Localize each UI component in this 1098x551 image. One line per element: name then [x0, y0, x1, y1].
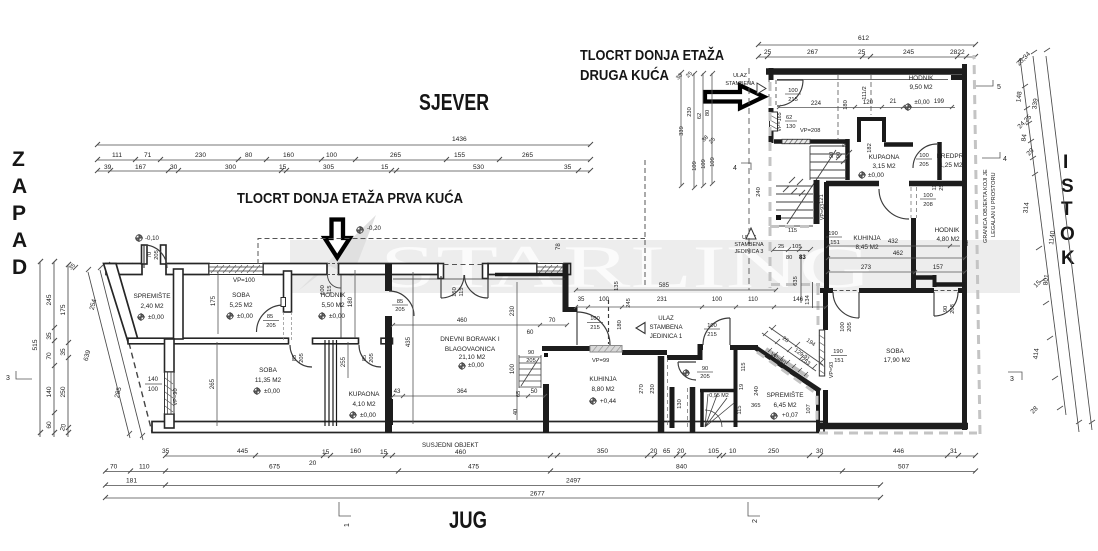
svg-text:100: 100 — [326, 152, 337, 159]
svg-text:-0,20: -0,20 — [367, 225, 382, 232]
svg-text:460: 460 — [457, 317, 468, 324]
svg-text:250: 250 — [939, 181, 945, 191]
svg-text:A: A — [12, 175, 27, 198]
svg-text:675: 675 — [269, 464, 280, 471]
svg-text:60: 60 — [46, 421, 53, 429]
svg-text:2: 2 — [752, 519, 759, 523]
svg-text:265: 265 — [209, 378, 216, 389]
svg-text:5,50 M2: 5,50 M2 — [321, 302, 345, 309]
svg-text:±0,00: ±0,00 — [264, 388, 280, 395]
svg-text:134: 134 — [805, 295, 811, 305]
svg-text:205: 205 — [919, 162, 929, 168]
svg-text:SPREMIŠTE: SPREMIŠTE — [767, 390, 804, 399]
svg-text:116: 116 — [932, 181, 938, 190]
svg-text:20: 20 — [309, 460, 317, 467]
svg-text:30: 30 — [816, 448, 824, 455]
svg-text:460: 460 — [455, 449, 466, 456]
svg-text:205: 205 — [299, 353, 305, 363]
svg-text:VP=208: VP=208 — [800, 128, 820, 134]
svg-text:70: 70 — [549, 317, 556, 324]
svg-text:T: T — [1061, 199, 1073, 220]
svg-text:8,80 M2: 8,80 M2 — [591, 386, 615, 393]
svg-text:180: 180 — [617, 320, 623, 330]
svg-text:635: 635 — [793, 276, 799, 286]
svg-text:175: 175 — [210, 295, 217, 306]
svg-text:SPREMIŠTE: SPREMIŠTE — [134, 291, 171, 300]
svg-text:17,90 M2: 17,90 M2 — [884, 357, 911, 364]
svg-text:35: 35 — [162, 448, 170, 455]
svg-text:155: 155 — [454, 152, 465, 159]
svg-text:100: 100 — [840, 322, 846, 332]
svg-text:182: 182 — [867, 143, 873, 153]
svg-text:TLOCRT DONJA ETAŽA: TLOCRT DONJA ETAŽA — [580, 46, 724, 64]
svg-text:50: 50 — [531, 388, 538, 395]
svg-text:1,25 M2: 1,25 M2 — [939, 162, 963, 169]
svg-text:65: 65 — [663, 448, 671, 455]
svg-text:530: 530 — [473, 164, 484, 171]
svg-text:70: 70 — [147, 252, 153, 258]
svg-text:205: 205 — [395, 307, 405, 313]
svg-text:180: 180 — [843, 100, 849, 110]
svg-text:±0,00: ±0,00 — [914, 99, 930, 106]
svg-text:190: 190 — [828, 231, 838, 237]
svg-text:190: 190 — [833, 349, 843, 355]
svg-text:9,50 M2: 9,50 M2 — [909, 84, 933, 91]
svg-text:100: 100 — [923, 193, 933, 199]
svg-text:65: 65 — [516, 391, 522, 397]
svg-text:507: 507 — [898, 464, 909, 471]
svg-text:K: K — [1061, 248, 1075, 269]
svg-text:181: 181 — [126, 478, 137, 485]
svg-text:462: 462 — [893, 250, 904, 257]
svg-text:130: 130 — [786, 124, 796, 130]
svg-text:100: 100 — [148, 386, 159, 393]
svg-text:305: 305 — [323, 164, 334, 171]
svg-text:21,10 M2: 21,10 M2 — [459, 354, 486, 361]
svg-text:31: 31 — [950, 448, 958, 455]
svg-text:25: 25 — [778, 244, 784, 250]
svg-text:110: 110 — [748, 296, 758, 303]
svg-text:273: 273 — [861, 264, 872, 271]
svg-text:25: 25 — [858, 49, 866, 56]
svg-text:+0,44: +0,44 — [600, 398, 617, 405]
svg-text:130: 130 — [677, 399, 683, 409]
svg-text:105: 105 — [708, 448, 719, 455]
svg-text:365: 365 — [751, 403, 761, 409]
svg-text:SOBA: SOBA — [259, 367, 277, 374]
svg-text:339: 339 — [1031, 98, 1039, 110]
svg-text:JUG: JUG — [449, 507, 487, 534]
svg-text:KUPAONA: KUPAONA — [349, 391, 381, 398]
svg-text:BLAGOVAONICA: BLAGOVAONICA — [445, 346, 496, 353]
svg-text:435: 435 — [405, 336, 412, 347]
svg-text:25: 25 — [764, 49, 772, 56]
svg-text:180: 180 — [347, 296, 354, 307]
svg-text:15: 15 — [381, 164, 389, 171]
svg-text:35: 35 — [564, 164, 572, 171]
svg-text:I: I — [1063, 152, 1068, 173]
svg-text:135: 135 — [614, 281, 620, 291]
svg-text:115: 115 — [737, 405, 743, 414]
svg-text:5: 5 — [997, 84, 1001, 91]
svg-text:SOBA: SOBA — [232, 292, 250, 299]
svg-text:205: 205 — [526, 358, 536, 364]
svg-text:SUSJEDNI OBJEKT: SUSJEDNI OBJEKT — [422, 442, 479, 449]
svg-text:ULAZ: ULAZ — [658, 315, 674, 322]
svg-text:265: 265 — [390, 152, 401, 159]
svg-text:115: 115 — [788, 228, 797, 234]
svg-text:90: 90 — [829, 152, 835, 158]
svg-text:70: 70 — [110, 464, 118, 471]
svg-text:300: 300 — [225, 164, 236, 171]
svg-text:DRUGA KUĆA: DRUGA KUĆA — [580, 66, 669, 84]
svg-text:175: 175 — [60, 304, 67, 315]
svg-text:250: 250 — [60, 386, 67, 397]
svg-text:8,45 M2: 8,45 M2 — [855, 244, 879, 251]
svg-text:432: 432 — [888, 238, 899, 245]
svg-text:100: 100 — [599, 296, 610, 303]
svg-text:111/2: 111/2 — [862, 86, 868, 99]
svg-text:314: 314 — [1022, 202, 1030, 214]
svg-text:208: 208 — [950, 304, 956, 314]
svg-text:21: 21 — [890, 98, 897, 105]
svg-text:85: 85 — [267, 314, 273, 320]
svg-text:±0,00: ±0,00 — [468, 362, 484, 369]
svg-text:160: 160 — [283, 152, 294, 159]
svg-text:250: 250 — [768, 448, 779, 455]
svg-text:80: 80 — [245, 152, 253, 159]
svg-text:157: 157 — [933, 264, 944, 271]
svg-text:KUHINJA: KUHINJA — [589, 376, 617, 383]
svg-text:265: 265 — [522, 152, 533, 159]
svg-text:HODNIK: HODNIK — [909, 75, 935, 82]
svg-text:50: 50 — [842, 141, 848, 147]
svg-text:100: 100 — [590, 316, 600, 322]
svg-text:STAMBENA: STAMBENA — [725, 81, 755, 87]
svg-text:83: 83 — [799, 254, 806, 261]
svg-text:205: 205 — [369, 353, 375, 363]
svg-text:SJEVER: SJEVER — [419, 89, 489, 115]
svg-text:85: 85 — [362, 355, 368, 361]
svg-text:585: 585 — [659, 282, 670, 289]
svg-text:32: 32 — [964, 240, 970, 246]
svg-text:85: 85 — [292, 355, 298, 361]
svg-text:0,95 M2: 0,95 M2 — [709, 393, 728, 399]
svg-text:100: 100 — [712, 296, 723, 303]
svg-text:5,25 M2: 5,25 M2 — [229, 302, 253, 309]
svg-text:35: 35 — [60, 348, 67, 356]
svg-text:SOBA: SOBA — [886, 348, 904, 355]
svg-text:240: 240 — [754, 386, 760, 396]
svg-text:2,40 M2: 2,40 M2 — [140, 303, 164, 310]
svg-text:60: 60 — [527, 329, 534, 336]
svg-text:35: 35 — [46, 332, 53, 340]
svg-text:230: 230 — [650, 384, 656, 394]
svg-text:2497: 2497 — [566, 478, 581, 485]
svg-text:270: 270 — [639, 384, 645, 394]
svg-text:A: A — [12, 229, 27, 252]
svg-text:160: 160 — [350, 448, 361, 455]
svg-text:4,10 M2: 4,10 M2 — [352, 401, 376, 408]
svg-text:KUPAONA: KUPAONA — [869, 154, 901, 161]
svg-text:-0,10: -0,10 — [145, 235, 160, 242]
svg-text:255: 255 — [340, 356, 347, 367]
svg-text:109: 109 — [701, 159, 707, 169]
svg-text:267: 267 — [807, 49, 818, 56]
svg-text:205: 205 — [266, 323, 276, 329]
svg-text:VP=165: VP=165 — [777, 112, 783, 131]
svg-text:100: 100 — [509, 363, 516, 374]
svg-text:339: 339 — [679, 126, 685, 136]
svg-text:111: 111 — [112, 152, 122, 159]
svg-text:4: 4 — [1003, 156, 1007, 163]
svg-text:205: 205 — [847, 322, 853, 332]
svg-text:TLOCRT DONJA ETAŽA PRVA KUĆA: TLOCRT DONJA ETAŽA PRVA KUĆA — [237, 189, 463, 207]
svg-text:40: 40 — [513, 409, 519, 415]
svg-text:146: 146 — [793, 296, 804, 303]
svg-text:VP=90: VP=90 — [173, 388, 179, 405]
svg-text:245: 245 — [903, 49, 914, 56]
svg-text:612: 612 — [858, 35, 869, 42]
svg-text:15: 15 — [322, 449, 330, 456]
svg-text:±0,00: ±0,00 — [148, 314, 164, 321]
svg-text:90: 90 — [702, 366, 708, 372]
svg-text:70: 70 — [46, 352, 53, 360]
svg-text:11,35 M2: 11,35 M2 — [255, 377, 282, 384]
svg-text:215: 215 — [707, 332, 717, 338]
svg-text:LEGALAN U PROSTORU: LEGALAN U PROSTORU — [991, 172, 997, 237]
svg-text:140: 140 — [148, 376, 159, 383]
svg-text:±0,00: ±0,00 — [360, 412, 376, 419]
svg-text:19: 19 — [739, 384, 745, 390]
svg-text:3: 3 — [6, 375, 10, 382]
svg-text:35: 35 — [578, 296, 585, 303]
svg-text:100: 100 — [788, 88, 798, 94]
svg-text:115: 115 — [327, 285, 333, 294]
svg-text:245: 245 — [626, 298, 632, 308]
svg-text:4: 4 — [733, 165, 737, 172]
svg-text:100: 100 — [320, 285, 326, 295]
svg-text:15: 15 — [279, 164, 287, 171]
svg-text:KUHINJA: KUHINJA — [853, 235, 881, 242]
svg-text:80: 80 — [786, 255, 792, 261]
svg-text:245: 245 — [46, 294, 53, 305]
svg-text:DNEVNI BORAVAK I: DNEVNI BORAVAK I — [440, 336, 500, 343]
svg-text:62: 62 — [697, 113, 703, 119]
svg-text:100: 100 — [919, 153, 929, 159]
svg-text:801: 801 — [1042, 274, 1050, 286]
svg-text:107: 107 — [806, 404, 812, 414]
svg-text:GRANICA OBJEKTA KOJI JE: GRANICA OBJEKTA KOJI JE — [983, 169, 989, 243]
svg-text:20: 20 — [650, 448, 658, 455]
svg-text:446: 446 — [893, 448, 904, 455]
svg-text:231: 231 — [657, 296, 668, 303]
svg-text:±0,00: ±0,00 — [237, 313, 253, 320]
svg-text:6,45 M2: 6,45 M2 — [773, 402, 797, 409]
svg-text:109: 109 — [710, 157, 716, 167]
svg-text:208: 208 — [923, 202, 933, 208]
svg-text:224: 224 — [811, 100, 822, 107]
svg-text:475: 475 — [468, 464, 479, 471]
svg-text:85: 85 — [397, 299, 403, 305]
svg-text:1436: 1436 — [452, 136, 467, 143]
svg-text:43: 43 — [394, 388, 401, 395]
svg-text:JEDINICA 1: JEDINICA 1 — [650, 333, 683, 340]
svg-text:2677: 2677 — [530, 491, 545, 498]
svg-text:109: 109 — [692, 161, 698, 171]
svg-text:62: 62 — [786, 115, 792, 121]
svg-text:P: P — [12, 202, 26, 225]
svg-text:ULAZ: ULAZ — [733, 73, 747, 79]
svg-text:4,80 M2: 4,80 M2 — [936, 236, 960, 243]
svg-text:VP=99: VP=99 — [592, 358, 609, 364]
svg-text:HODNIK: HODNIK — [935, 227, 961, 234]
svg-text:+0,07: +0,07 — [782, 412, 799, 419]
svg-text:84: 84 — [1021, 133, 1029, 141]
svg-text:15: 15 — [380, 449, 388, 456]
svg-text:205: 205 — [154, 250, 160, 260]
svg-text:80: 80 — [705, 110, 711, 116]
svg-text:10: 10 — [729, 448, 737, 455]
svg-text:110: 110 — [139, 464, 150, 471]
svg-text:445: 445 — [237, 448, 248, 455]
svg-text:3,15 M2: 3,15 M2 — [872, 163, 896, 170]
svg-text:±0,00: ±0,00 — [329, 313, 345, 320]
svg-text:230: 230 — [687, 107, 693, 117]
svg-text:20: 20 — [677, 448, 685, 455]
svg-text:364: 364 — [457, 388, 468, 395]
svg-text:151: 151 — [830, 240, 840, 246]
svg-text:115: 115 — [459, 287, 465, 296]
svg-text:150: 150 — [452, 287, 458, 297]
svg-text:STAMBENA: STAMBENA — [649, 324, 683, 331]
svg-text:230: 230 — [195, 152, 206, 159]
svg-text:205: 205 — [700, 374, 710, 380]
svg-text:100: 100 — [707, 323, 717, 329]
svg-text:151: 151 — [834, 358, 844, 364]
svg-text:VP=100: VP=100 — [233, 277, 255, 284]
svg-text:90: 90 — [943, 306, 949, 312]
svg-text:121: 121 — [819, 194, 825, 204]
svg-text:VP=93: VP=93 — [820, 204, 826, 220]
svg-text:±0,00: ±0,00 — [868, 172, 884, 179]
svg-text:215: 215 — [590, 325, 600, 331]
svg-text:230: 230 — [509, 305, 516, 316]
svg-text:240: 240 — [756, 187, 762, 197]
svg-text:840: 840 — [676, 464, 687, 471]
svg-text:71: 71 — [144, 152, 152, 159]
svg-text:515: 515 — [32, 339, 39, 350]
svg-text:414: 414 — [1032, 348, 1040, 360]
svg-text:199: 199 — [934, 98, 945, 105]
svg-text:39: 39 — [104, 164, 112, 171]
svg-text:148: 148 — [1015, 91, 1023, 103]
svg-text:2822: 2822 — [950, 49, 965, 56]
svg-text:D: D — [12, 256, 27, 279]
svg-text:1: 1 — [344, 523, 351, 527]
svg-text:PREDPR: PREDPR — [937, 153, 964, 160]
svg-text:140: 140 — [46, 386, 53, 397]
svg-text:90: 90 — [528, 350, 534, 356]
svg-text:167: 167 — [135, 164, 146, 171]
svg-text:215: 215 — [788, 97, 798, 103]
svg-text:Z: Z — [12, 148, 25, 171]
svg-text:30: 30 — [170, 164, 178, 171]
svg-text:78: 78 — [555, 243, 562, 250]
svg-text:3: 3 — [1010, 376, 1014, 383]
svg-text:VP=93: VP=93 — [829, 362, 835, 378]
svg-text:350: 350 — [597, 448, 608, 455]
svg-text:115: 115 — [741, 362, 747, 371]
